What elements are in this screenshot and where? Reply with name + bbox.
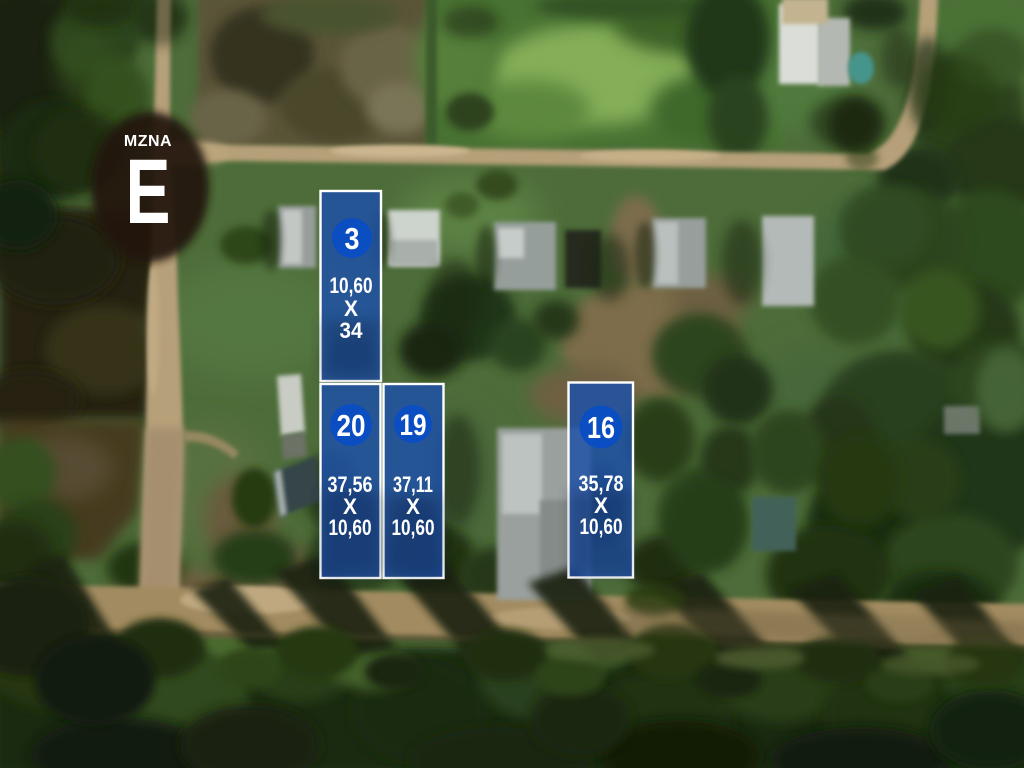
svg-text:10,60: 10,60 bbox=[580, 514, 623, 539]
svg-text:34: 34 bbox=[340, 318, 364, 343]
svg-text:10,60: 10,60 bbox=[392, 515, 435, 540]
svg-text:10,60: 10,60 bbox=[330, 273, 373, 298]
svg-text:19: 19 bbox=[400, 409, 427, 442]
svg-text:16: 16 bbox=[587, 410, 615, 445]
svg-text:E: E bbox=[126, 141, 171, 243]
svg-text:3: 3 bbox=[345, 221, 360, 256]
svg-text:10,60: 10,60 bbox=[329, 515, 372, 540]
svg-text:20: 20 bbox=[337, 408, 366, 443]
